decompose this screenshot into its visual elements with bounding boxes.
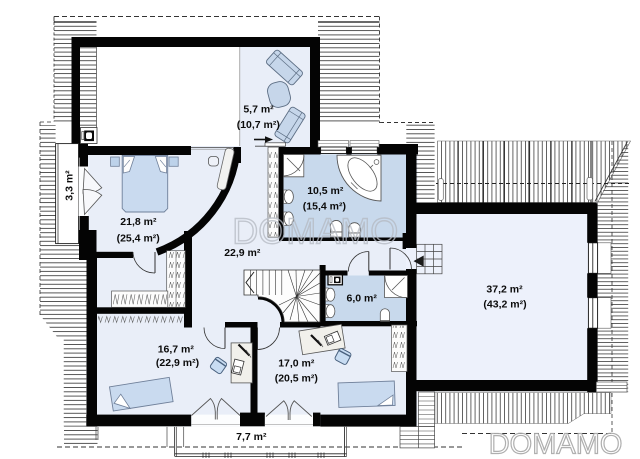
- svg-text:DOMAMO: DOMAMO: [489, 429, 623, 459]
- svg-text:16,7 m²: 16,7 m²: [158, 343, 195, 355]
- svg-text:DOMAMO: DOMAMO: [232, 211, 398, 252]
- svg-text:(25,4 m²): (25,4 m²): [117, 233, 160, 245]
- svg-text:21,8 m²: 21,8 m²: [120, 216, 157, 228]
- svg-text:(43,2 m²): (43,2 m²): [483, 299, 526, 311]
- svg-text:6,0 m²: 6,0 m²: [347, 292, 378, 304]
- svg-text:5,7 m²: 5,7 m²: [243, 103, 274, 115]
- svg-text:(20,5 m²): (20,5 m²): [275, 372, 318, 384]
- svg-text:7,7 m²: 7,7 m²: [236, 431, 267, 443]
- svg-text:17,0 m²: 17,0 m²: [278, 357, 315, 369]
- svg-text:(22,9 m²): (22,9 m²): [156, 357, 199, 369]
- svg-text:10,5 m²: 10,5 m²: [307, 185, 344, 197]
- svg-text:3,3 m²: 3,3 m²: [63, 170, 75, 201]
- svg-text:37,2 m²: 37,2 m²: [486, 284, 523, 296]
- svg-text:(10,7 m²): (10,7 m²): [237, 119, 280, 131]
